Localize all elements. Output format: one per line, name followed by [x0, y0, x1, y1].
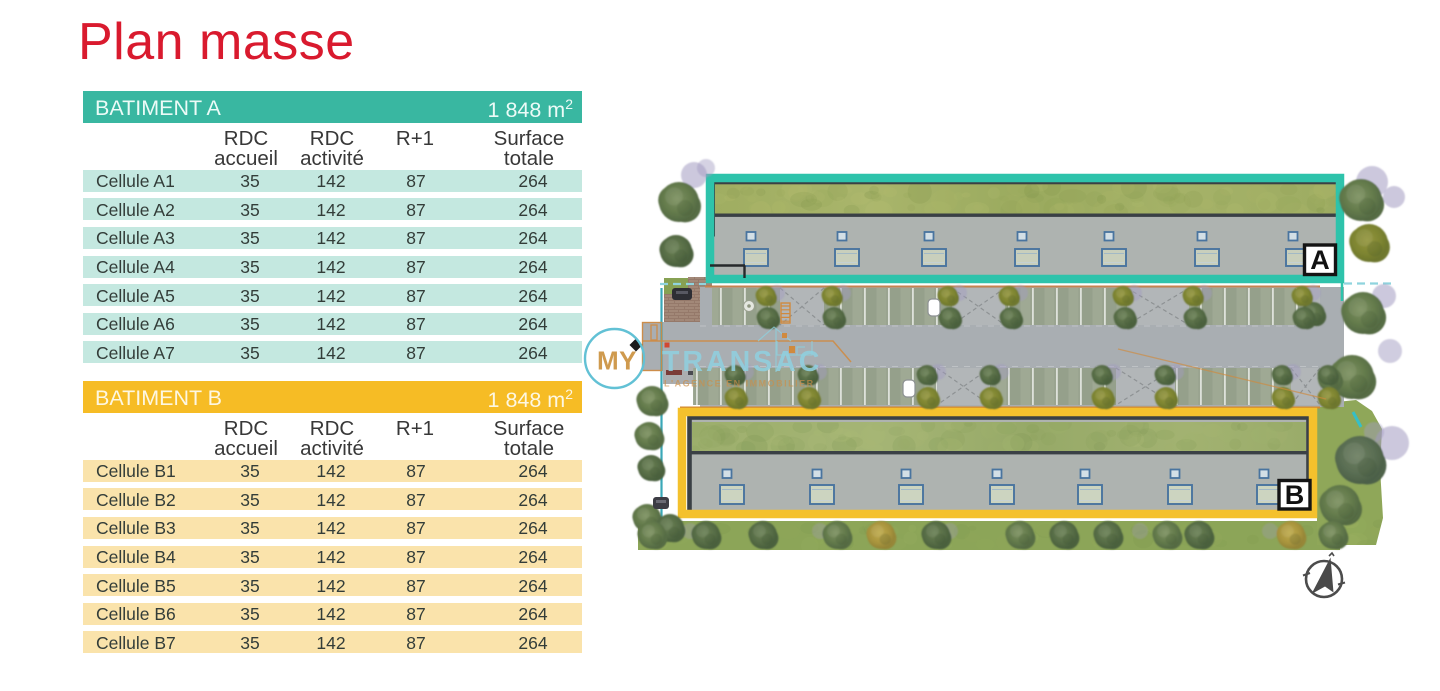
svg-text:TRANSAC: TRANSAC [662, 346, 822, 378]
svg-text:L'AGENCE EN IMMOBILIER: L'AGENCE EN IMMOBILIER [664, 379, 815, 389]
svg-text:B: B [1285, 480, 1305, 510]
svg-text:MY: MY [597, 346, 637, 376]
svg-text:A: A [1310, 245, 1330, 275]
